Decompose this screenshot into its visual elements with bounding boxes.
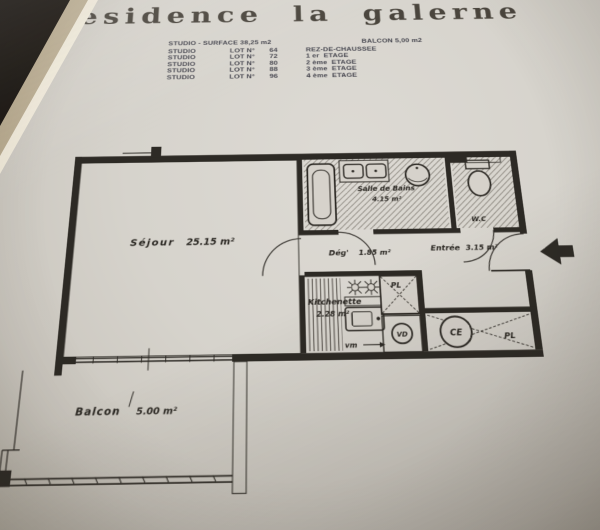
salle-de-bains-area: 4.15 m² bbox=[372, 195, 403, 203]
kitchen-sink-icon bbox=[345, 307, 384, 331]
entrance-door-arc bbox=[485, 234, 528, 271]
balcon-label: Balcon bbox=[75, 406, 121, 419]
wc-label: W.C bbox=[471, 215, 487, 223]
double-sink-icon bbox=[339, 160, 389, 182]
degagement-label: Dég' bbox=[329, 248, 349, 258]
kitchenette-area: 2.28 m² bbox=[316, 309, 350, 319]
brochure-page: residence la galerne STUDIO - SURFACE 38… bbox=[0, 0, 600, 530]
vent-label: vm bbox=[345, 341, 358, 350]
vent-arrow bbox=[363, 342, 385, 348]
degagement-area: 1.85 m² bbox=[358, 248, 391, 257]
floor-plan: Séjour 25.15 m² Salle de Bains 4.15 m² W… bbox=[0, 141, 600, 504]
photographed-brochure: residence la galerne STUDIO - SURFACE 38… bbox=[0, 0, 600, 530]
entree-label: Entrée bbox=[430, 243, 461, 253]
surface-summary: STUDIO - SURFACE 38,25 m2 bbox=[168, 39, 271, 47]
closet-label: PL bbox=[390, 281, 401, 290]
balcony bbox=[0, 361, 247, 497]
balcony-party-wall bbox=[232, 361, 247, 493]
closet-label: PL bbox=[504, 331, 516, 340]
page-title: residence la galerne bbox=[41, 0, 540, 29]
sejour-door-arc bbox=[263, 239, 302, 276]
spec-table: STUDIO - SURFACE 38,25 m2 BALCON 5,00 m2… bbox=[167, 37, 426, 81]
balcony-step bbox=[0, 470, 12, 487]
unit-type: STUDIO bbox=[167, 73, 230, 81]
door-arcs bbox=[263, 230, 531, 276]
balcony-railing bbox=[0, 370, 28, 485]
kitchenette-label: Kitchenette bbox=[308, 297, 363, 307]
water-heater-closet bbox=[427, 314, 535, 350]
entrance-arrow-icon bbox=[538, 238, 575, 265]
balcony-window bbox=[73, 347, 232, 372]
sejour-inner-outline bbox=[63, 160, 300, 357]
page-content: residence la galerne STUDIO - SURFACE 38… bbox=[0, 0, 600, 530]
balcon-area: 5.00 m² bbox=[136, 406, 178, 418]
water-heater-label: CE bbox=[450, 327, 464, 337]
salle-de-bains-label: Salle de Bains bbox=[357, 184, 415, 193]
hotplates-icon bbox=[347, 279, 380, 295]
sejour-label: Séjour bbox=[130, 237, 175, 249]
lot-label: LOT N° bbox=[229, 73, 269, 80]
sejour-area: 25.15 m² bbox=[186, 237, 235, 248]
waste-chute-label: VD bbox=[396, 330, 408, 338]
washbasin-icon bbox=[405, 164, 430, 186]
lot-number: 96 bbox=[270, 72, 307, 79]
balcony-summary: BALCON 5,00 m2 bbox=[361, 37, 422, 44]
entree-area: 3.15 m² bbox=[465, 243, 499, 252]
bathtub-icon bbox=[307, 164, 336, 226]
floor-level: 4 ème ETAGE bbox=[306, 71, 425, 79]
